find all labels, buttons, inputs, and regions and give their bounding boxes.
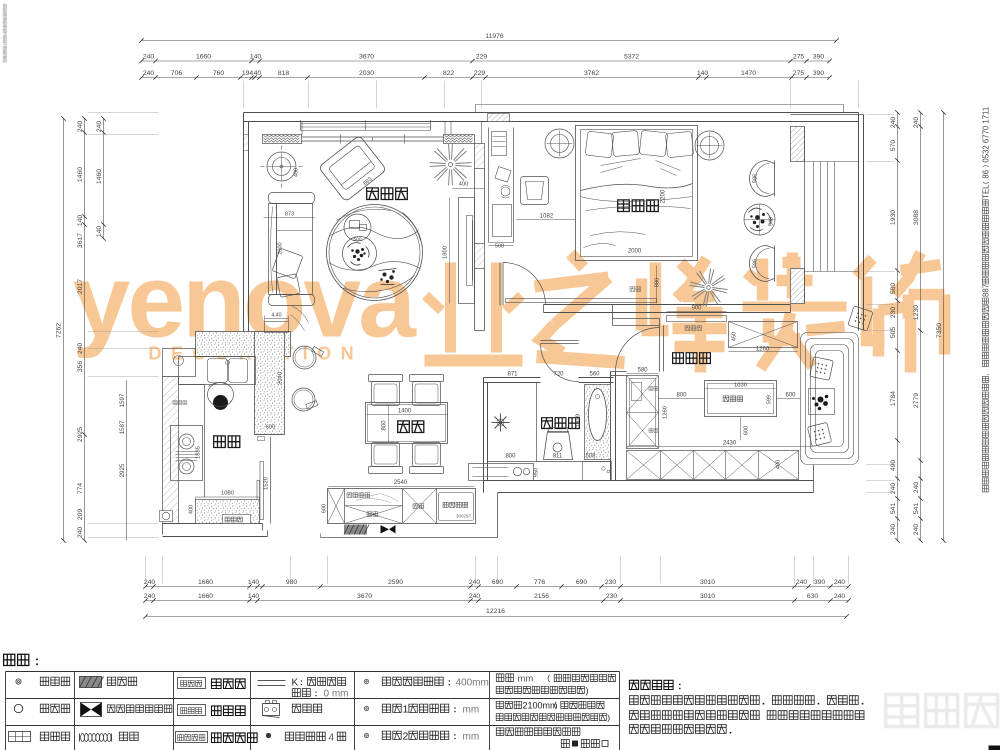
svg-text:1082: 1082 (540, 214, 554, 220)
svg-text:586: 586 (753, 174, 759, 183)
svg-text:240: 240 (890, 524, 897, 536)
svg-text:400: 400 (189, 505, 195, 514)
svg-text:887: 887 (982, 284, 991, 297)
svg-text:2540: 2540 (394, 480, 408, 486)
svg-text:1587: 1587 (119, 420, 126, 434)
svg-text:): ) (607, 713, 610, 723)
svg-text:2200: 2200 (661, 189, 667, 203)
svg-text:140: 140 (250, 54, 262, 61)
svg-text:822: 822 (443, 70, 455, 77)
svg-text:580: 580 (637, 368, 648, 374)
svg-text:240: 240 (77, 343, 84, 355)
svg-text:mm: mm (463, 732, 480, 743)
svg-text:230: 230 (606, 593, 618, 600)
svg-text:1784: 1784 (890, 391, 897, 406)
svg-text:549: 549 (769, 217, 775, 226)
svg-text:140: 140 (77, 215, 84, 227)
svg-text:4: 4 (329, 733, 335, 744)
svg-text:3617: 3617 (77, 233, 84, 248)
svg-text:1260: 1260 (756, 347, 770, 353)
svg-text:240: 240 (143, 70, 155, 77)
svg-text:40: 40 (254, 70, 262, 77)
svg-text:1230: 1230 (913, 305, 920, 320)
svg-text:240: 240 (144, 593, 156, 600)
svg-text:800: 800 (676, 393, 687, 399)
svg-text:240: 240 (469, 579, 481, 586)
svg-text:1470: 1470 (741, 70, 756, 77)
svg-text:873: 873 (285, 212, 294, 218)
svg-text:500: 500 (495, 244, 504, 250)
svg-text:229: 229 (474, 70, 486, 77)
svg-text:1660: 1660 (198, 579, 213, 586)
svg-text:11976: 11976 (485, 33, 504, 40)
svg-text:693: 693 (362, 177, 373, 187)
svg-text:900: 900 (691, 306, 702, 312)
svg-text:880: 880 (655, 278, 661, 287)
svg-text:1329: 1329 (576, 414, 582, 427)
svg-text:TEL: TEL (982, 184, 991, 199)
svg-text:776: 776 (534, 579, 546, 586)
svg-text:1: 1 (403, 704, 409, 716)
svg-text:2925: 2925 (119, 463, 126, 477)
svg-text:720: 720 (553, 372, 564, 378)
svg-text:400mm: 400mm (456, 678, 489, 689)
svg-text:12216: 12216 (486, 608, 505, 615)
svg-text:240: 240 (96, 121, 103, 133)
svg-text:2017: 2017 (77, 279, 84, 294)
svg-text:390: 390 (813, 70, 825, 77)
svg-text:240: 240 (913, 482, 920, 494)
svg-text:240: 240 (834, 579, 846, 586)
svg-text:300297: 300297 (456, 514, 472, 519)
svg-text:240: 240 (77, 121, 84, 133)
svg-text:240: 240 (796, 579, 808, 586)
svg-text:541: 541 (913, 503, 920, 515)
svg-text:580: 580 (890, 283, 897, 295)
svg-text:2925: 2925 (77, 427, 84, 442)
svg-text:240: 240 (834, 593, 846, 600)
svg-text:240: 240 (469, 593, 481, 600)
svg-text:818: 818 (278, 70, 290, 77)
svg-text:560: 560 (589, 372, 600, 378)
svg-text:140: 140 (248, 579, 260, 586)
svg-text:480: 480 (294, 168, 300, 177)
svg-text:390: 390 (813, 54, 825, 61)
svg-text:1885: 1885 (196, 446, 202, 459)
svg-text:600: 600 (744, 426, 750, 435)
svg-text:240: 240 (143, 54, 155, 61)
svg-text:2000: 2000 (278, 242, 284, 254)
svg-text:490: 490 (890, 460, 897, 472)
svg-text:1660: 1660 (196, 54, 211, 61)
svg-text:2030: 2030 (359, 70, 374, 77)
svg-text:209: 209 (77, 509, 84, 521)
svg-text:390: 390 (814, 579, 826, 586)
svg-text:400: 400 (776, 460, 782, 469)
svg-text:3762: 3762 (584, 70, 599, 77)
svg-text:980: 980 (286, 579, 298, 586)
svg-text:2000: 2000 (628, 249, 642, 255)
svg-text:1520: 1520 (264, 477, 270, 490)
svg-text:1460: 1460 (96, 169, 103, 184)
svg-text:240: 240 (77, 527, 84, 539)
svg-text:229: 229 (476, 54, 488, 61)
svg-text:2040: 2040 (278, 372, 284, 385)
svg-text:0532 6770 1711: 0532 6770 1711 (982, 107, 991, 163)
svg-text:230: 230 (605, 579, 617, 586)
svg-text:3010: 3010 (700, 579, 715, 586)
svg-text:2590: 2590 (388, 579, 403, 586)
svg-text:800: 800 (505, 454, 516, 460)
svg-text:1930: 1930 (890, 210, 897, 225)
svg-text:400: 400 (459, 182, 469, 188)
svg-text:86: 86 (982, 170, 991, 179)
svg-text:4.40: 4.40 (271, 313, 281, 319)
svg-text:1597: 1597 (119, 393, 126, 407)
svg-text:275: 275 (793, 54, 805, 61)
svg-text:774: 774 (77, 483, 84, 495)
svg-text:230: 230 (890, 307, 897, 319)
svg-text:1080: 1080 (221, 491, 234, 497)
svg-text:2100mm: 2100mm (523, 701, 558, 711)
svg-text:275: 275 (793, 70, 805, 77)
svg-text:1400: 1400 (398, 409, 412, 415)
svg-text:706: 706 (171, 70, 183, 77)
svg-text:,: , (982, 373, 991, 375)
svg-text:450: 450 (732, 332, 738, 341)
svg-text:5372: 5372 (624, 54, 639, 61)
svg-text:7262: 7262 (56, 323, 63, 338)
svg-text:3670: 3670 (359, 54, 374, 61)
svg-text:): ) (586, 686, 589, 696)
svg-text:1260: 1260 (663, 406, 669, 419)
svg-text:600: 600 (266, 425, 276, 431)
svg-text:950: 950 (534, 468, 540, 477)
svg-text:2: 2 (403, 731, 409, 743)
svg-text:600: 600 (785, 393, 796, 399)
svg-text:600: 600 (322, 504, 328, 513)
svg-text:K: K (292, 678, 299, 689)
svg-text:1030: 1030 (734, 383, 747, 389)
svg-text:194: 194 (242, 70, 254, 77)
svg-text:508: 508 (585, 454, 596, 460)
svg-text:140: 140 (697, 70, 709, 77)
svg-text:2779: 2779 (913, 393, 920, 408)
svg-text:871: 871 (507, 372, 518, 378)
svg-text:570: 570 (890, 140, 897, 152)
svg-text:140: 140 (96, 226, 103, 238)
svg-text:356: 356 (77, 361, 84, 373)
svg-text:140: 140 (248, 593, 260, 600)
svg-text:0 mm: 0 mm (324, 689, 349, 700)
svg-text:690: 690 (576, 579, 588, 586)
svg-text:3010: 3010 (700, 593, 715, 600)
svg-text:800: 800 (382, 420, 388, 431)
svg-text:1460: 1460 (77, 167, 84, 182)
svg-text:mm: mm (518, 674, 534, 685)
svg-text:811: 811 (553, 454, 563, 460)
svg-text:1800: 1800 (443, 246, 449, 259)
svg-text:541: 541 (890, 503, 897, 515)
svg-text:240: 240 (913, 524, 920, 536)
svg-text:586: 586 (753, 259, 759, 268)
svg-text:505: 505 (890, 327, 897, 339)
svg-text:240: 240 (890, 117, 897, 129)
svg-text:2156: 2156 (534, 593, 549, 600)
svg-text:7350: 7350 (936, 323, 943, 338)
svg-text:3088: 3088 (913, 210, 920, 225)
svg-text:760: 760 (213, 70, 225, 77)
svg-text:2430: 2430 (723, 441, 737, 447)
svg-text:630: 630 (807, 593, 819, 600)
svg-text:1660: 1660 (198, 593, 213, 600)
svg-text:3670: 3670 (357, 593, 372, 600)
svg-text:599: 599 (767, 395, 773, 404)
svg-text:mm: mm (463, 705, 480, 716)
svg-text:240: 240 (913, 117, 920, 129)
